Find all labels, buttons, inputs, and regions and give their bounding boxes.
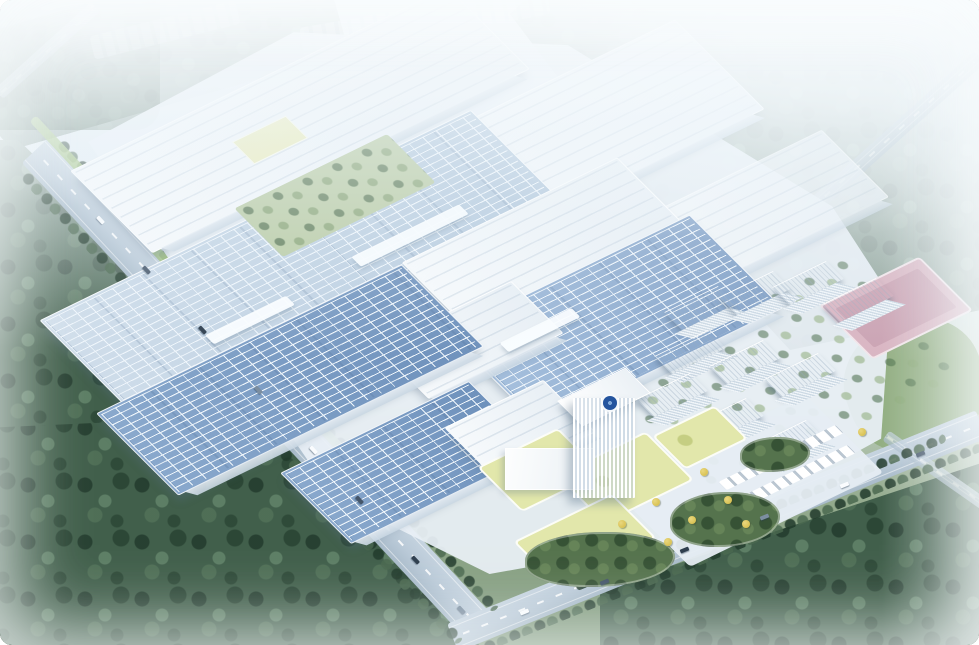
yellow-tree (858, 428, 866, 436)
yellow-tree (742, 520, 750, 528)
yellow-tree (724, 496, 732, 504)
hq-office-tower (573, 398, 635, 498)
yellow-tree (664, 538, 672, 546)
yellow-tree (652, 498, 660, 506)
yellow-tree (700, 468, 708, 476)
aerial-campus-rendering (0, 0, 979, 645)
company-logo-emblem (603, 396, 617, 410)
yellow-tree (618, 520, 626, 528)
yellow-tree (688, 516, 696, 524)
